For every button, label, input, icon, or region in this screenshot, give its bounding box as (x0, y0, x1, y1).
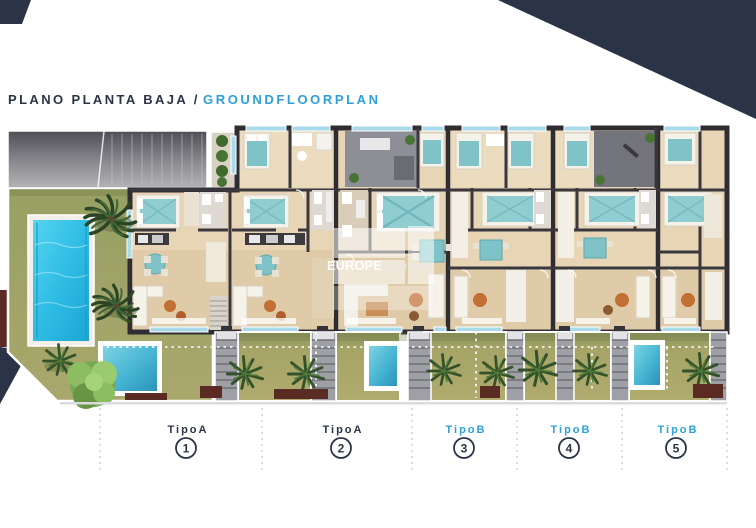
svg-text:EUROPE: EUROPE (327, 258, 382, 273)
svg-text:5: 5 (673, 442, 680, 456)
svg-text:TipoB: TipoB (551, 424, 592, 436)
svg-text:2: 2 (338, 442, 345, 456)
svg-text:PLANO PLANTA BAJA /: PLANO PLANTA BAJA / (8, 92, 200, 107)
svg-text:TipoA: TipoA (168, 424, 209, 436)
svg-text:GROUNDFLOORPLAN: GROUNDFLOORPLAN (203, 92, 381, 107)
svg-text:TipoB: TipoB (658, 424, 699, 436)
svg-text:homes: homes (385, 259, 436, 273)
svg-text:TipoA: TipoA (323, 424, 364, 436)
svg-text:3: 3 (461, 442, 468, 456)
svg-text:TipoB: TipoB (446, 424, 487, 436)
svg-text:1: 1 (183, 442, 190, 456)
svg-text:4: 4 (566, 442, 573, 456)
